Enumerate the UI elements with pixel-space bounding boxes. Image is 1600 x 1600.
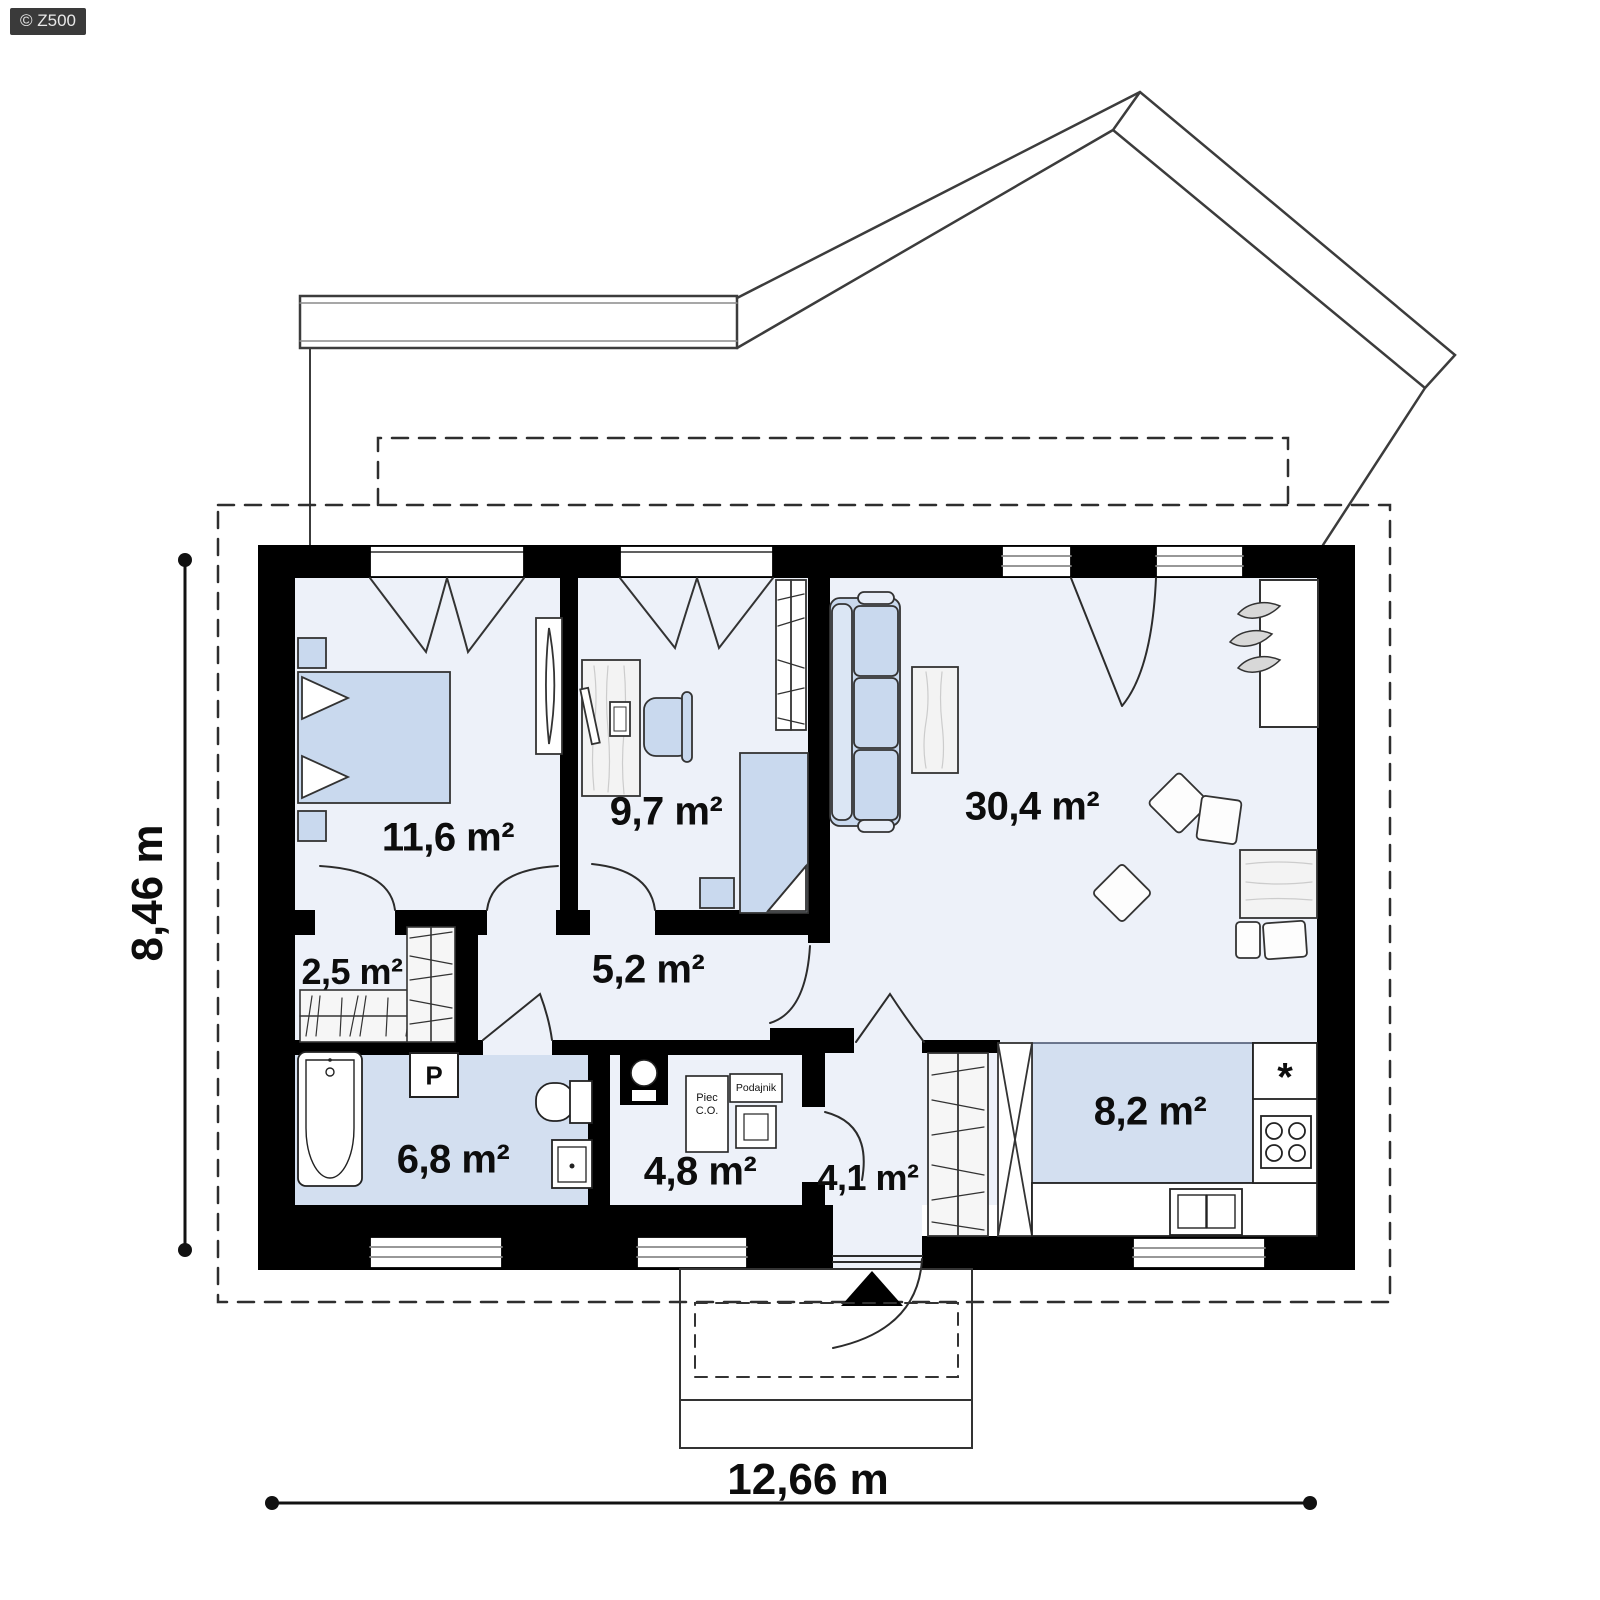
- chimney: [620, 1055, 668, 1105]
- single-bed: [740, 753, 808, 913]
- wall-kids-living: [808, 578, 830, 943]
- feeder-label: Podajnik: [736, 1082, 776, 1094]
- roof-outline: [300, 92, 1455, 545]
- cabinet-cross: [998, 1043, 1032, 1236]
- wall-exterior-right: [1317, 545, 1355, 1270]
- wall-hall-wardrobe: [455, 910, 478, 1055]
- window-bathroom: [370, 1237, 502, 1268]
- room-label-hallway: 5,2 m²: [592, 948, 705, 993]
- chair: [1196, 795, 1242, 844]
- sofa: [830, 592, 900, 832]
- window-kitchen: [1133, 1238, 1265, 1268]
- coffee-table: [912, 667, 958, 773]
- dimension-label-height: 8,46 m: [123, 825, 173, 962]
- entry-closet: [928, 1043, 1032, 1236]
- room-label-entry: 4,1 m²: [817, 1157, 918, 1199]
- wall-boiler-entry-top: [802, 1028, 825, 1107]
- room-label-boiler-room: 4,8 m²: [644, 1150, 757, 1195]
- room-label-bedroom: 11,6 m²: [382, 816, 514, 861]
- toilet: [536, 1081, 592, 1123]
- wardrobe-cabinet: [407, 927, 455, 1042]
- chair: [1263, 921, 1307, 960]
- floor-entry-doorway: [833, 1205, 922, 1269]
- tv-panel: [536, 618, 562, 754]
- dining-table: [1240, 850, 1317, 918]
- nightstand: [298, 638, 326, 668]
- room-label-bathroom: 6,8 m²: [397, 1138, 510, 1183]
- kitchen-sink-marker: *: [1277, 1056, 1293, 1101]
- chair: [1236, 922, 1260, 958]
- nightstand: [298, 811, 326, 841]
- dimension-height: [178, 553, 192, 1257]
- room-label-wardrobe: 2,5 m²: [301, 951, 402, 993]
- room-label-kitchen: 8,2 m²: [1094, 1090, 1207, 1135]
- kitchen-cabinet: [1170, 1189, 1242, 1235]
- window-living-right: [1156, 546, 1243, 577]
- room-label-kids-room: 9,7 m²: [610, 790, 723, 835]
- office-chair: [644, 692, 692, 762]
- watermark-logo: © Z500: [10, 8, 86, 35]
- room-label-living-room: 30,4 m²: [965, 785, 1099, 830]
- desk: [580, 660, 640, 796]
- stove: [1261, 1116, 1311, 1168]
- floor-plan-drawing: [0, 0, 1600, 1600]
- window-boiler-room: [637, 1237, 747, 1268]
- floor-plan-page: © Z500 11,6 m² 9,7 m² 30,4 m² 2,5 m² 5,2…: [0, 0, 1600, 1600]
- bathtub: [298, 1052, 362, 1186]
- wall-exterior-left: [258, 545, 295, 1270]
- wardrobe-kids: [776, 580, 806, 730]
- porch: [680, 1269, 972, 1448]
- sink: [552, 1140, 592, 1188]
- entrance-arrow-icon: [841, 1271, 903, 1306]
- dimension-label-width: 12,66 m: [727, 1455, 888, 1505]
- furnace-label: Piec C.O.: [687, 1092, 727, 1118]
- window-living-left: [1002, 546, 1071, 577]
- wardrobe-entry: [928, 1053, 988, 1236]
- nightstand: [700, 878, 734, 908]
- tv-shelf: [1260, 580, 1318, 727]
- washing-machine-label: P: [425, 1061, 442, 1092]
